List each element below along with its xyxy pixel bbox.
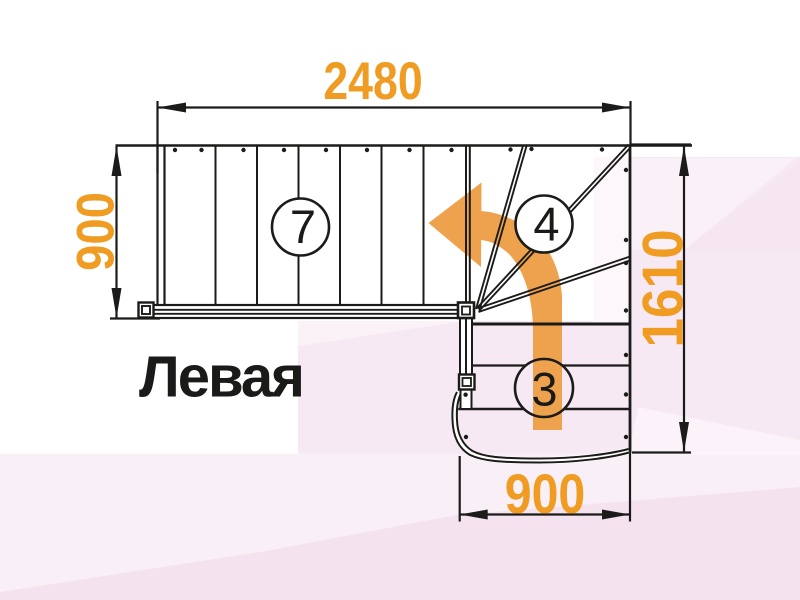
svg-text:1610: 1610	[631, 229, 695, 347]
svg-text:2480: 2480	[323, 53, 422, 111]
svg-text:7: 7	[290, 200, 316, 253]
svg-text:900: 900	[66, 192, 125, 271]
svg-text:3: 3	[531, 363, 557, 416]
svg-text:Левая: Левая	[139, 345, 303, 410]
svg-text:4: 4	[533, 198, 559, 251]
svg-text:900: 900	[505, 464, 586, 526]
